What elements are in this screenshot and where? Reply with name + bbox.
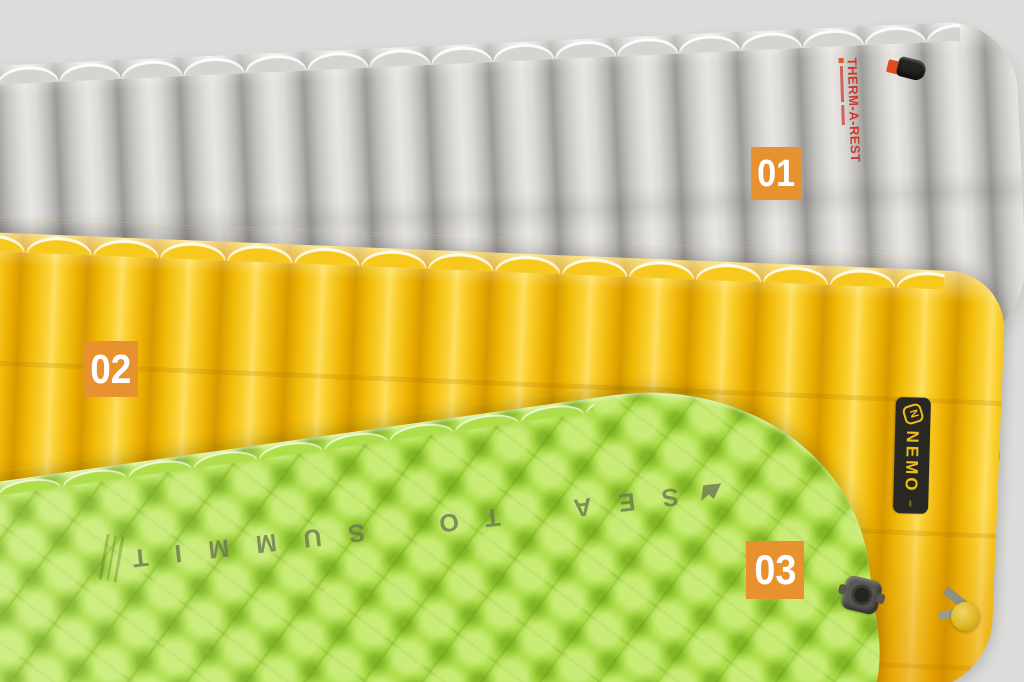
nemo-logo-icon: N: [901, 402, 925, 426]
yellow-pad-valve-icon: [940, 590, 990, 640]
pad-thermarest-scalloped-edge: [0, 7, 960, 88]
thermarest-brand-label: THERM-A-REST: [827, 57, 864, 198]
badge-01: 01: [751, 147, 802, 200]
badge-02: 02: [83, 341, 138, 397]
nemo-brand-tag: N NEMO: [893, 397, 931, 514]
valve-disc: [951, 602, 980, 631]
sleeping-pads-photo: THERM-A-REST N NEMO SEA TO SUMMIT 01 02 …: [0, 0, 1024, 682]
sea-to-summit-logo-icon: [697, 482, 725, 503]
nemo-fine-print-mark: [910, 500, 912, 506]
nemo-wordmark: NEMO: [903, 430, 922, 493]
valve-core: [852, 586, 870, 604]
valve-black-cap: [895, 56, 927, 82]
badge-03: 03: [746, 541, 804, 599]
